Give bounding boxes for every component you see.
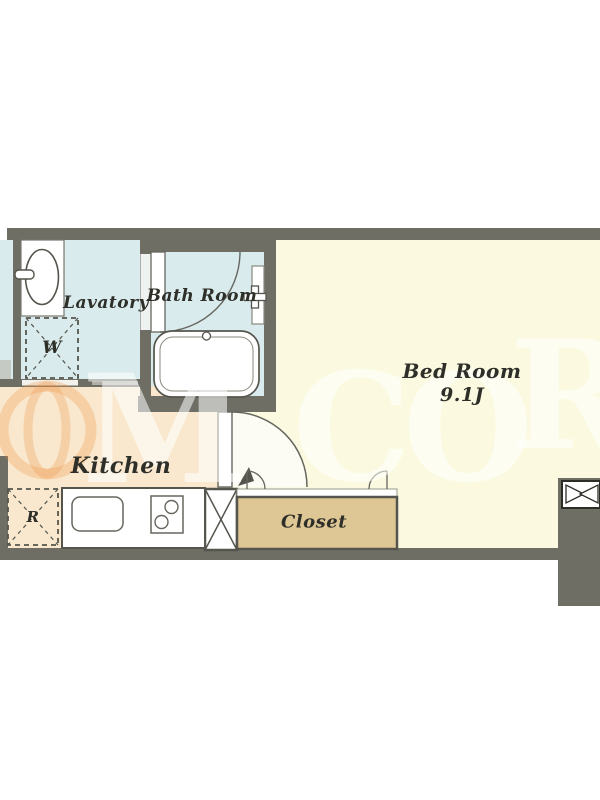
floorplan-page: M C O R Lavatory Bath Room Bed Room 9.1J… bbox=[0, 0, 600, 800]
bathtub-outer bbox=[154, 331, 259, 397]
door-leaf bbox=[218, 412, 232, 487]
side-room-sliver bbox=[0, 240, 13, 381]
floorplan-drawing bbox=[0, 0, 600, 800]
wall-bath-bedroom bbox=[264, 238, 276, 412]
refrigerator-label: R bbox=[27, 508, 40, 526]
pillar-column bbox=[205, 489, 237, 550]
lavatory-label: Lavatory bbox=[63, 293, 149, 313]
bathroom-label: Bath Room bbox=[147, 286, 258, 306]
bathtub-faucet-icon bbox=[203, 332, 211, 340]
wall-bath-top bbox=[140, 240, 276, 252]
bedroom-size-label: 9.1J bbox=[440, 384, 484, 406]
wall-left bbox=[0, 456, 8, 556]
wall-sliver-lavatory bbox=[13, 240, 21, 381]
stove-burner-1 bbox=[165, 501, 178, 514]
washing-machine-label: W bbox=[42, 338, 62, 358]
wall-bath-bottom bbox=[138, 396, 276, 412]
closet-label: Closet bbox=[281, 512, 347, 533]
stove-burner-2 bbox=[155, 516, 168, 529]
wall-top bbox=[7, 228, 600, 240]
kitchen-sink bbox=[72, 497, 123, 531]
pipe-shaft-symbol bbox=[562, 481, 600, 508]
bedroom-label: Bed Room bbox=[402, 359, 521, 383]
lavatory-door-track-2 bbox=[92, 381, 138, 385]
sliver-door bbox=[0, 360, 11, 381]
kitchen-label: Kitchen bbox=[71, 453, 172, 479]
sink-faucet-icon bbox=[15, 270, 34, 279]
